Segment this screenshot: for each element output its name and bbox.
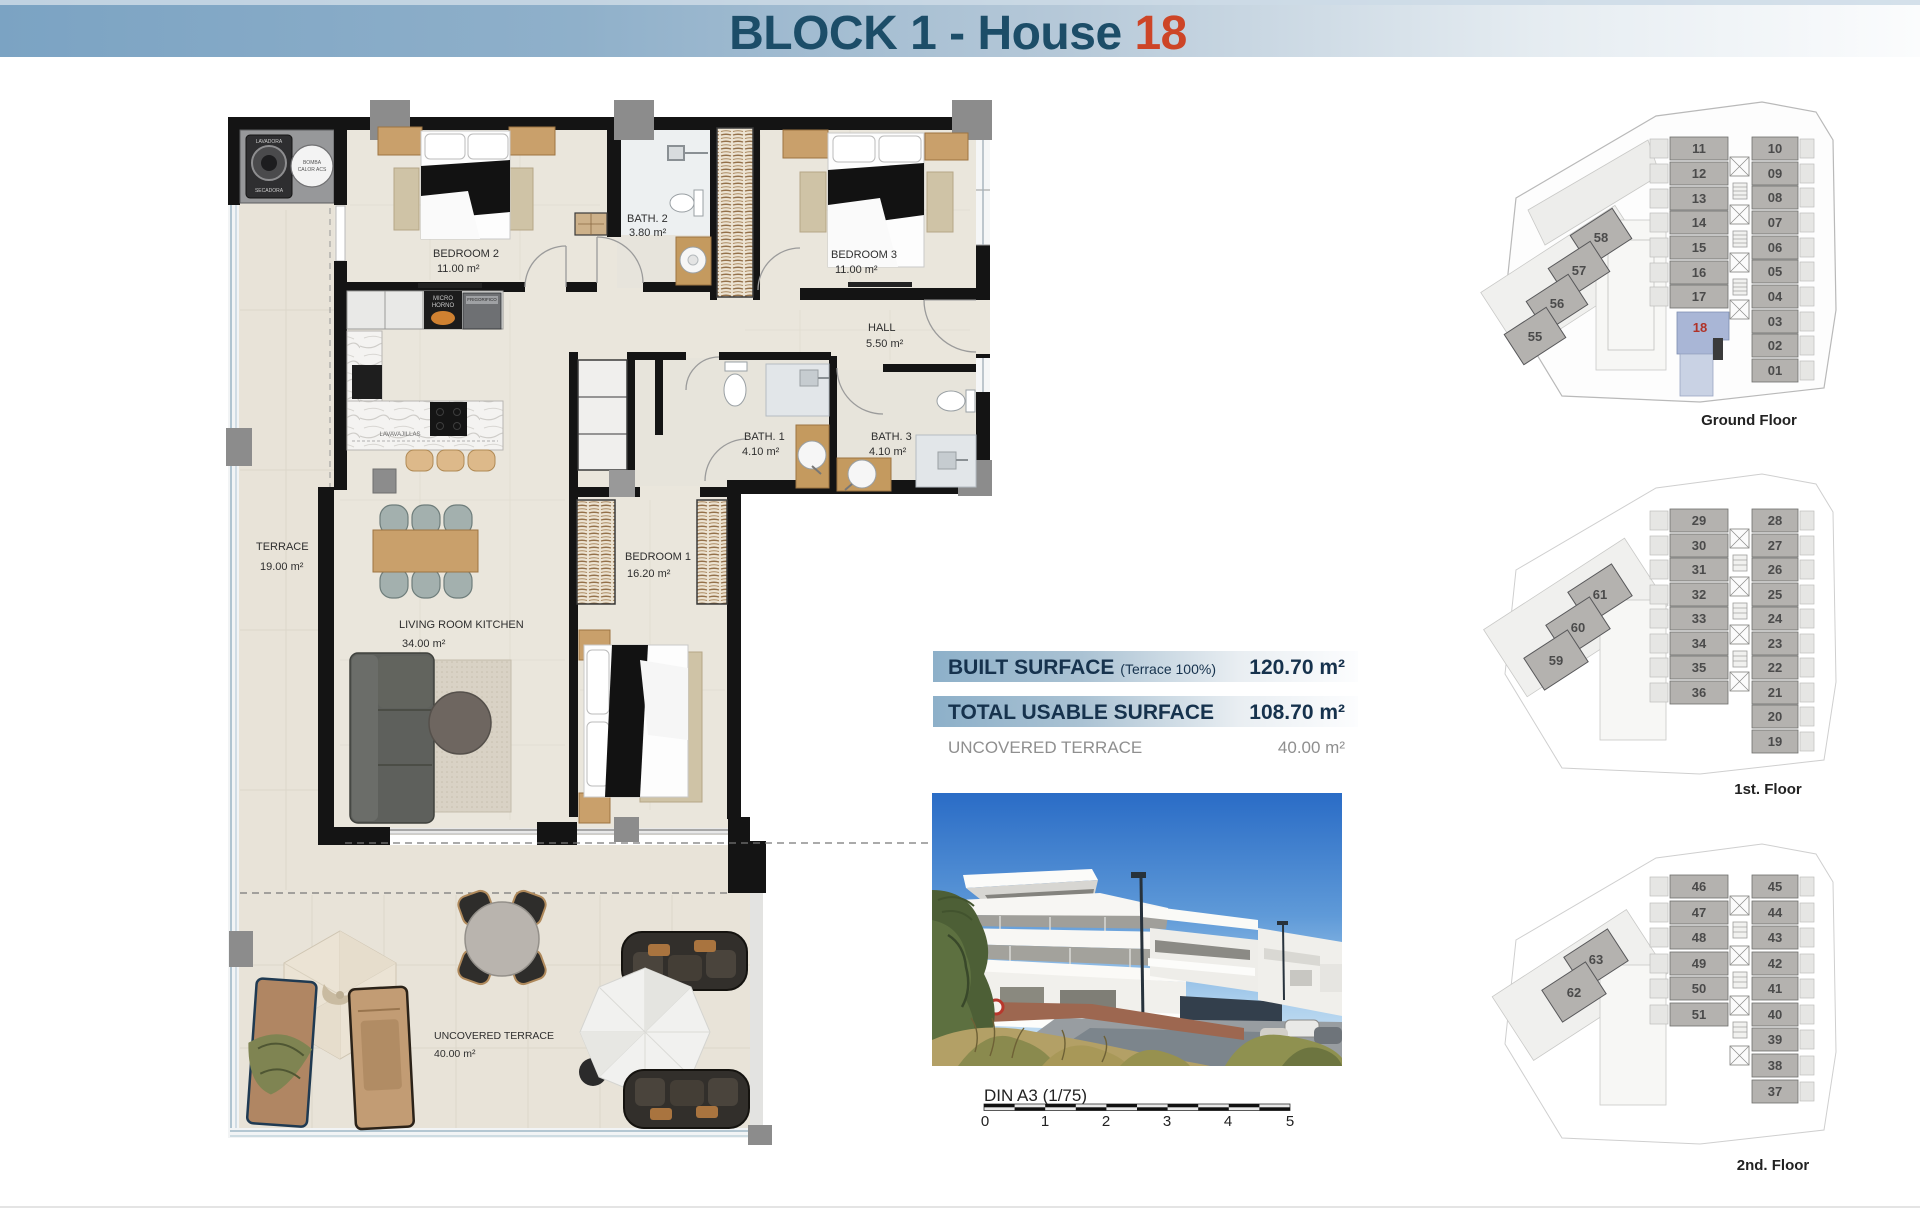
svg-text:35: 35 [1692,660,1706,675]
svg-text:DIN A3 (1/75): DIN A3 (1/75) [984,1086,1087,1105]
svg-text:11: 11 [1692,141,1706,156]
svg-text:TOTAL USABLE SURFACE: TOTAL USABLE SURFACE [948,701,1214,724]
svg-text:16.20 m²: 16.20 m² [627,568,671,580]
svg-text:48: 48 [1692,930,1706,945]
svg-text:45: 45 [1768,879,1782,894]
svg-text:40: 40 [1768,1007,1782,1022]
svg-text:33: 33 [1692,611,1706,626]
svg-text:08: 08 [1768,190,1782,205]
svg-text:04: 04 [1768,289,1783,304]
svg-text:Ground Floor: Ground Floor [1701,412,1797,429]
svg-text:5: 5 [1286,1113,1294,1130]
svg-text:55: 55 [1528,329,1542,344]
svg-text:3.80 m²: 3.80 m² [629,227,667,239]
svg-text:19: 19 [1768,734,1782,749]
svg-text:MICRO: MICRO [433,296,453,302]
svg-text:32: 32 [1692,587,1706,602]
svg-text:TERRACE: TERRACE [256,541,309,553]
svg-text:120.70 m²: 120.70 m² [1249,656,1345,679]
svg-text:37: 37 [1768,1084,1782,1099]
svg-text:39: 39 [1768,1032,1782,1047]
svg-text:3: 3 [1163,1113,1171,1130]
svg-text:CALOR ACS: CALOR ACS [298,167,327,173]
svg-text:44: 44 [1768,905,1783,920]
svg-text:16: 16 [1692,265,1706,280]
svg-text:13: 13 [1692,191,1706,206]
svg-text:40.00 m²: 40.00 m² [434,1048,476,1060]
svg-text:19.00 m²: 19.00 m² [260,561,304,573]
svg-text:5.50 m²: 5.50 m² [866,338,904,350]
svg-text:BLOCK 1 - House 18: BLOCK 1 - House 18 [729,7,1187,60]
svg-text:BOMBA: BOMBA [303,160,322,166]
svg-text:20: 20 [1768,709,1782,724]
svg-text:03: 03 [1768,314,1782,329]
svg-text:50: 50 [1692,981,1706,996]
svg-text:11.00 m²: 11.00 m² [835,264,878,276]
svg-text:58: 58 [1594,230,1608,245]
svg-text:BATH. 3: BATH. 3 [871,431,912,443]
svg-text:LAVAVAJILLAS: LAVAVAJILLAS [380,432,421,438]
svg-text:HORNO: HORNO [432,303,455,309]
svg-text:57: 57 [1572,263,1586,278]
svg-text:41: 41 [1768,981,1782,996]
svg-text:108.70 m²: 108.70 m² [1249,701,1345,724]
svg-text:56: 56 [1550,296,1564,311]
svg-text:30: 30 [1692,538,1706,553]
svg-text:LAVADORA: LAVADORA [256,139,283,145]
svg-text:42: 42 [1768,956,1782,971]
svg-text:BATH. 1: BATH. 1 [744,431,785,443]
svg-text:23: 23 [1768,636,1782,651]
svg-text:34: 34 [1692,636,1707,651]
svg-text:4.10 m²: 4.10 m² [742,446,780,458]
svg-text:27: 27 [1768,538,1782,553]
svg-text:51: 51 [1692,1007,1706,1022]
svg-text:29: 29 [1692,513,1706,528]
svg-text:46: 46 [1692,879,1706,894]
svg-text:09: 09 [1768,166,1782,181]
svg-text:22: 22 [1768,660,1782,675]
svg-text:1: 1 [1041,1113,1049,1130]
svg-text:12: 12 [1692,166,1706,181]
svg-text:2: 2 [1102,1113,1110,1130]
svg-text:40.00 m²: 40.00 m² [1278,738,1345,757]
svg-text:49: 49 [1692,956,1706,971]
svg-text:0: 0 [981,1113,989,1130]
svg-text:FRIGORIFICO: FRIGORIFICO [467,297,497,302]
svg-text:15: 15 [1692,240,1706,255]
svg-text:62: 62 [1567,985,1581,1000]
svg-text:UNCOVERED TERRACE: UNCOVERED TERRACE [434,1030,554,1042]
svg-text:05: 05 [1768,264,1782,279]
svg-text:14: 14 [1692,215,1707,230]
svg-text:4.10 m²: 4.10 m² [869,446,907,458]
svg-text:38: 38 [1768,1058,1782,1073]
svg-text:06: 06 [1768,240,1782,255]
svg-text:26: 26 [1768,562,1782,577]
svg-text:25: 25 [1768,587,1782,602]
svg-text:36: 36 [1692,685,1706,700]
svg-text:LIVING ROOM KITCHEN: LIVING ROOM KITCHEN [399,619,524,631]
svg-text:34.00 m²: 34.00 m² [402,638,446,650]
svg-text:63: 63 [1589,952,1603,967]
svg-text:UNCOVERED TERRACE: UNCOVERED TERRACE [948,738,1142,757]
svg-text:SECADORA: SECADORA [255,188,284,194]
svg-text:18: 18 [1693,320,1707,335]
svg-text:BEDROOM 3: BEDROOM 3 [831,249,897,261]
svg-text:HALL: HALL [868,322,896,334]
svg-text:4: 4 [1224,1113,1232,1130]
svg-text:2nd. Floor: 2nd. Floor [1737,1157,1810,1174]
svg-text:1st. Floor: 1st. Floor [1734,781,1802,798]
svg-text:47: 47 [1692,905,1706,920]
svg-text:02: 02 [1768,338,1782,353]
svg-text:24: 24 [1768,611,1783,626]
svg-text:BEDROOM 2: BEDROOM 2 [433,248,499,260]
svg-text:17: 17 [1692,289,1706,304]
svg-text:43: 43 [1768,930,1782,945]
svg-text:61: 61 [1593,587,1607,602]
svg-text:07: 07 [1768,215,1782,230]
svg-text:60: 60 [1571,620,1585,635]
svg-text:11.00 m²: 11.00 m² [437,263,480,275]
svg-text:10: 10 [1768,141,1782,156]
svg-text:28: 28 [1768,513,1782,528]
svg-text:BATH. 2: BATH. 2 [627,213,668,225]
svg-text:BEDROOM 1: BEDROOM 1 [625,551,691,563]
svg-text:59: 59 [1549,653,1563,668]
svg-text:01: 01 [1768,363,1782,378]
svg-text:21: 21 [1768,685,1782,700]
svg-text:31: 31 [1692,562,1706,577]
